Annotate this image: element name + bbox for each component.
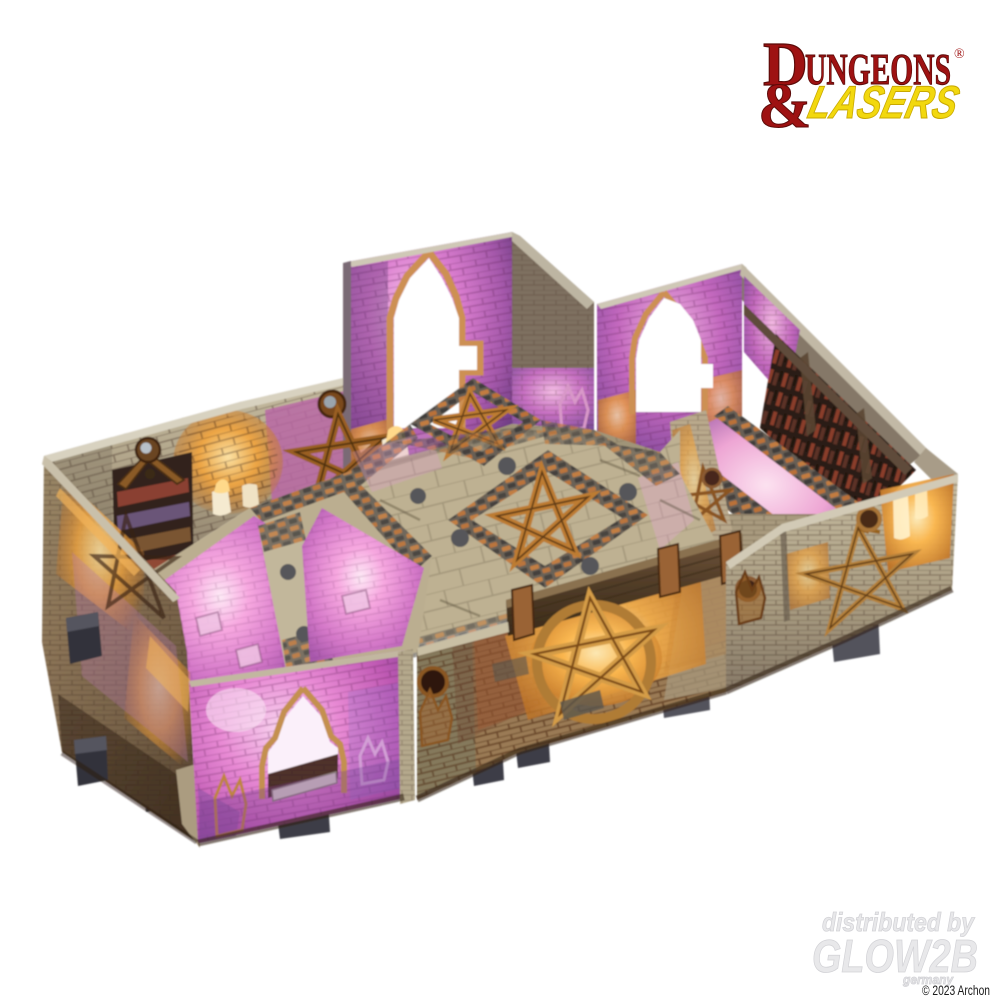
svg-text:© 2023 Archon: © 2023 Archon bbox=[922, 983, 990, 998]
svg-text:GLOW2B: GLOW2B bbox=[812, 930, 978, 982]
svg-text:®: ® bbox=[954, 47, 965, 62]
svg-text:&: & bbox=[758, 70, 811, 141]
svg-text:LASERS: LASERS bbox=[804, 77, 965, 128]
